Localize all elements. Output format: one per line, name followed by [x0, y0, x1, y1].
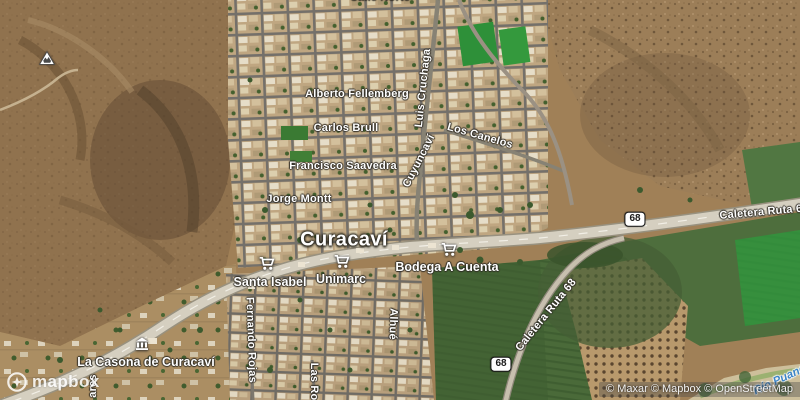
map-attribution[interactable]: © Maxar © Mapbox © OpenStreetMap	[599, 382, 800, 397]
mapbox-wordmark: mapbox	[32, 372, 100, 392]
route-shield-68: 68	[624, 212, 645, 227]
satellite-basemap	[0, 0, 800, 400]
museum-icon[interactable]	[134, 336, 152, 354]
mountain-peak-icon	[39, 51, 56, 66]
mapbox-logo-icon	[6, 371, 28, 393]
mapbox-logo[interactable]: mapbox	[6, 371, 100, 393]
map-canvas[interactable]: Alberto Fellemberg Carlos Brull Francisc…	[0, 0, 800, 400]
shopping-cart-icon[interactable]	[440, 241, 458, 259]
shopping-cart-icon[interactable]	[258, 255, 276, 273]
shopping-cart-icon[interactable]	[333, 253, 351, 271]
route-shield-68: 68	[490, 357, 511, 372]
